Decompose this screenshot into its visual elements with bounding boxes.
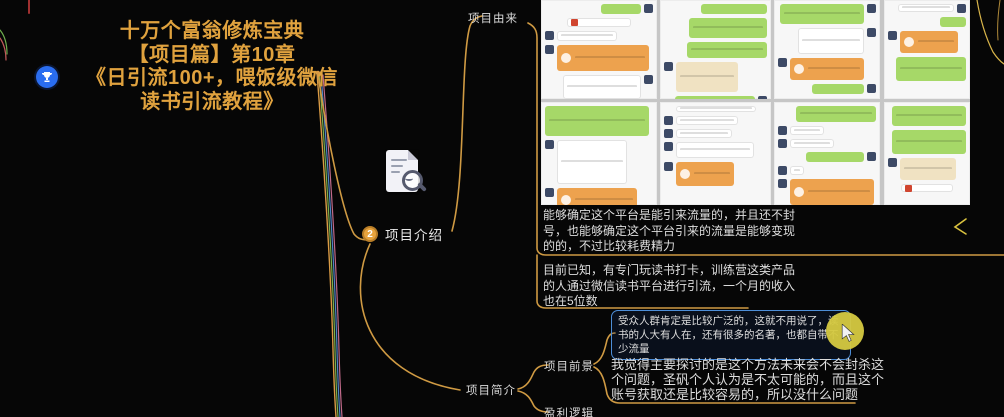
blurred-text-lines — [680, 119, 734, 123]
chat-avatar — [778, 139, 787, 148]
trophy-icon[interactable] — [36, 66, 58, 88]
chat-avatar — [545, 45, 554, 54]
trophy-glyph — [41, 71, 53, 83]
root-title-line: 十万个富翁修炼宝典 — [62, 20, 362, 44]
chat-avatar — [957, 4, 966, 13]
chat-avatar — [778, 179, 787, 188]
chat-bubble-o — [557, 188, 637, 205]
chat-message-row — [545, 188, 653, 205]
chat-bubble-w — [676, 142, 754, 158]
root-title-node[interactable]: 十万个富翁修炼宝典 【项目篇】第10章 《日引流100+，喂饭级微信 读书引流教… — [62, 20, 362, 114]
magnifier-wave — [405, 176, 413, 181]
blurred-text-lines — [900, 67, 962, 71]
red-packet-icon — [794, 64, 804, 74]
chat-bubble-c — [676, 62, 738, 92]
chat-avatar — [644, 75, 653, 84]
chat-bubble-g — [689, 18, 767, 38]
chat-bubble-g — [806, 152, 864, 162]
root-title-line: 【项目篇】第10章 — [62, 44, 362, 68]
blurred-text-lines — [794, 169, 800, 173]
chat-message-row — [545, 75, 653, 99]
number-2-badge: 2 — [362, 226, 378, 242]
chat-message-row — [664, 162, 767, 186]
chat-bubble-g — [892, 130, 966, 154]
document-text-line — [391, 165, 403, 167]
blurred-text-lines — [575, 198, 633, 202]
blurred-text-lines — [794, 129, 820, 133]
chat-bubble-w — [798, 28, 864, 54]
chat-message-row — [778, 179, 876, 205]
chat-bubble-g — [601, 4, 641, 14]
node-label: 项目介绍 — [385, 224, 443, 244]
chat-message-row — [778, 166, 876, 175]
node-project-origin[interactable]: 项目由来 — [468, 10, 518, 26]
chat-bubble-g — [701, 4, 767, 14]
document-text-line — [391, 171, 400, 173]
note-ban-risk[interactable]: 我觉得主要探讨的是这个方法未来会不会封杀这个问题，圣矾个人认为是不太可能的，而且… — [611, 358, 891, 402]
chat-avatar — [778, 126, 787, 135]
chat-message-row — [664, 116, 767, 125]
chat-message-row — [888, 17, 966, 27]
chat-message-row — [545, 18, 653, 27]
note-audience-selected[interactable]: 受众人群肯定是比较广泛的，这就不用说了，读书的人大有人在，还有很多的名著，也都自… — [611, 310, 851, 360]
chat-avatar — [867, 152, 876, 161]
chat-bubble-w — [676, 106, 756, 112]
chat-message-row — [778, 28, 876, 54]
blurred-text-lines — [691, 48, 763, 52]
blurred-text-lines — [794, 142, 830, 146]
node-project-intro[interactable]: 2 项目介绍 — [362, 224, 443, 244]
chat-avatar — [545, 140, 554, 149]
node-project-prospect[interactable]: 项目前景 — [544, 358, 594, 374]
chat-message-row — [888, 31, 966, 53]
chat-bubble-w — [557, 140, 627, 184]
red-packet-icon — [904, 37, 914, 47]
chat-bubble-w — [898, 4, 954, 12]
blurred-text-lines — [680, 107, 752, 111]
chat-bubble-o — [790, 179, 874, 205]
wechat-screenshot-panel — [660, 0, 771, 99]
chat-avatar — [867, 84, 876, 93]
chat-avatar — [664, 162, 673, 171]
blurred-text-lines — [904, 167, 952, 171]
chat-bubble-w — [790, 166, 804, 175]
chat-message-row — [664, 96, 767, 99]
red-packet-icon — [794, 187, 804, 197]
blurred-text-lines — [680, 148, 750, 152]
chat-bubble-g — [940, 17, 966, 27]
blurred-text-lines — [693, 26, 763, 30]
blurred-text-lines — [902, 6, 950, 10]
chat-message-row — [664, 142, 767, 158]
chat-bubble-w — [790, 126, 824, 135]
blurred-text-lines — [896, 114, 962, 118]
document-search-icon[interactable] — [384, 150, 430, 202]
blurred-text-lines — [784, 12, 860, 16]
chat-avatar — [778, 58, 787, 67]
blurred-text-lines — [575, 56, 645, 60]
mouse-cursor-icon — [840, 324, 856, 342]
chat-message-row — [664, 62, 767, 92]
chat-bubble-w — [676, 116, 738, 125]
blurred-text-lines — [561, 34, 613, 38]
link-card-icon — [905, 185, 912, 192]
chat-message-row — [778, 84, 876, 94]
wechat-screenshot-panel — [660, 102, 771, 205]
blurred-text-lines — [802, 39, 860, 43]
chat-avatar — [545, 31, 554, 40]
chat-avatar — [867, 28, 876, 37]
chat-bubble-w — [676, 129, 732, 138]
chat-message-row — [888, 106, 966, 126]
blurred-text-lines — [680, 75, 734, 79]
chat-message-row — [888, 130, 966, 154]
mindmap-canvas[interactable]: 十万个富翁修炼宝典 【项目篇】第10章 《日引流100+，喂饭级微信 读书引流教… — [0, 0, 1004, 417]
blurred-text-lines — [680, 132, 728, 136]
chat-message-row — [778, 106, 876, 122]
chat-bubble-o — [900, 31, 958, 53]
chat-avatar — [664, 129, 673, 138]
chat-message-row — [888, 184, 966, 192]
chat-message-row — [888, 57, 966, 81]
chat-avatar — [664, 62, 673, 71]
chat-bubble-g — [687, 42, 767, 58]
chat-message-row — [664, 106, 767, 112]
chat-avatar — [778, 166, 787, 175]
blurred-text-lines — [567, 85, 637, 89]
chat-message-row — [778, 4, 876, 24]
red-packet-icon — [561, 195, 571, 205]
blurred-text-lines — [808, 190, 870, 194]
chat-message-row — [664, 129, 767, 138]
chat-avatar — [888, 31, 897, 40]
chat-message-row — [545, 140, 653, 184]
wechat-screenshot-panel — [774, 0, 880, 99]
chat-avatar — [664, 116, 673, 125]
blurred-text-lines — [800, 112, 872, 116]
chat-avatar — [758, 96, 767, 99]
chat-bubble-g — [545, 106, 649, 136]
chat-message-row — [545, 45, 653, 71]
chat-bubble-g — [796, 106, 876, 122]
chat-bubble-o — [557, 45, 649, 71]
wechat-screenshot-panel — [884, 0, 970, 99]
node-profit-logic[interactable]: 盈利逻辑 — [544, 405, 594, 417]
document-fold-corner — [408, 150, 418, 160]
blurred-text-lines — [896, 140, 962, 144]
chat-avatar — [867, 4, 876, 13]
chat-message-row — [778, 126, 876, 135]
wechat-screenshot-panel — [884, 102, 970, 205]
note-platform-traffic[interactable]: 能够确定这个平台是能引来流量的，并且还不封号，也能够确定这个平台引来的流量是能够… — [543, 208, 805, 255]
blurred-text-lines — [561, 160, 623, 164]
link-card-icon — [571, 19, 578, 26]
chat-bubble-o — [790, 58, 864, 80]
chat-bubble-w — [790, 139, 834, 148]
wechat-chat-collage-image[interactable] — [541, 0, 970, 205]
magnifier-handle — [417, 182, 427, 192]
red-packet-icon — [680, 169, 690, 179]
note-known-income[interactable]: 目前已知，有专门玩读书打卡，训练营这类产品的人通过微信读书平台进行引流，一个月的… — [543, 263, 805, 310]
chat-message-row — [888, 158, 966, 180]
wechat-screenshot-panel — [541, 0, 657, 99]
red-packet-icon — [561, 53, 571, 63]
chat-bubble-w — [563, 75, 641, 99]
node-project-brief[interactable]: 项目简介 — [466, 382, 516, 398]
chat-bubble-g — [896, 57, 966, 81]
chat-message-row — [664, 42, 767, 58]
chat-bubble-c — [900, 158, 956, 180]
chat-message-row — [778, 139, 876, 148]
chat-bubble-g — [780, 4, 864, 24]
chat-bubble-link — [901, 184, 953, 192]
chat-message-row — [664, 18, 767, 38]
document-text-line — [391, 159, 407, 161]
blurred-text-lines — [808, 67, 860, 71]
chat-bubble-link — [567, 18, 631, 27]
chat-message-row — [778, 58, 876, 80]
blurred-text-lines — [549, 119, 645, 123]
chat-bubble-g — [892, 106, 966, 126]
chat-avatar — [644, 4, 653, 13]
chat-message-row — [545, 106, 653, 136]
root-title-line: 《日引流100+，喂饭级微信 — [62, 67, 362, 91]
cursor-highlight — [826, 312, 864, 350]
blurred-text-lines — [918, 40, 954, 44]
chat-message-row — [545, 4, 653, 14]
blurred-text-lines — [694, 172, 730, 176]
chat-message-row — [664, 4, 767, 14]
chat-avatar — [888, 158, 897, 167]
chat-avatar — [545, 188, 554, 197]
chat-bubble-g — [812, 84, 864, 94]
wechat-screenshot-panel — [774, 102, 880, 205]
chat-bubble-g — [675, 96, 755, 99]
chat-message-row — [888, 4, 966, 13]
chat-avatar — [664, 142, 673, 151]
chat-bubble-w — [557, 31, 617, 41]
chat-bubble-o — [676, 162, 734, 186]
root-title-line: 读书引流教程》 — [62, 91, 362, 115]
chat-message-row — [778, 152, 876, 162]
wechat-screenshot-panel — [541, 102, 657, 205]
chat-message-row — [545, 31, 653, 41]
